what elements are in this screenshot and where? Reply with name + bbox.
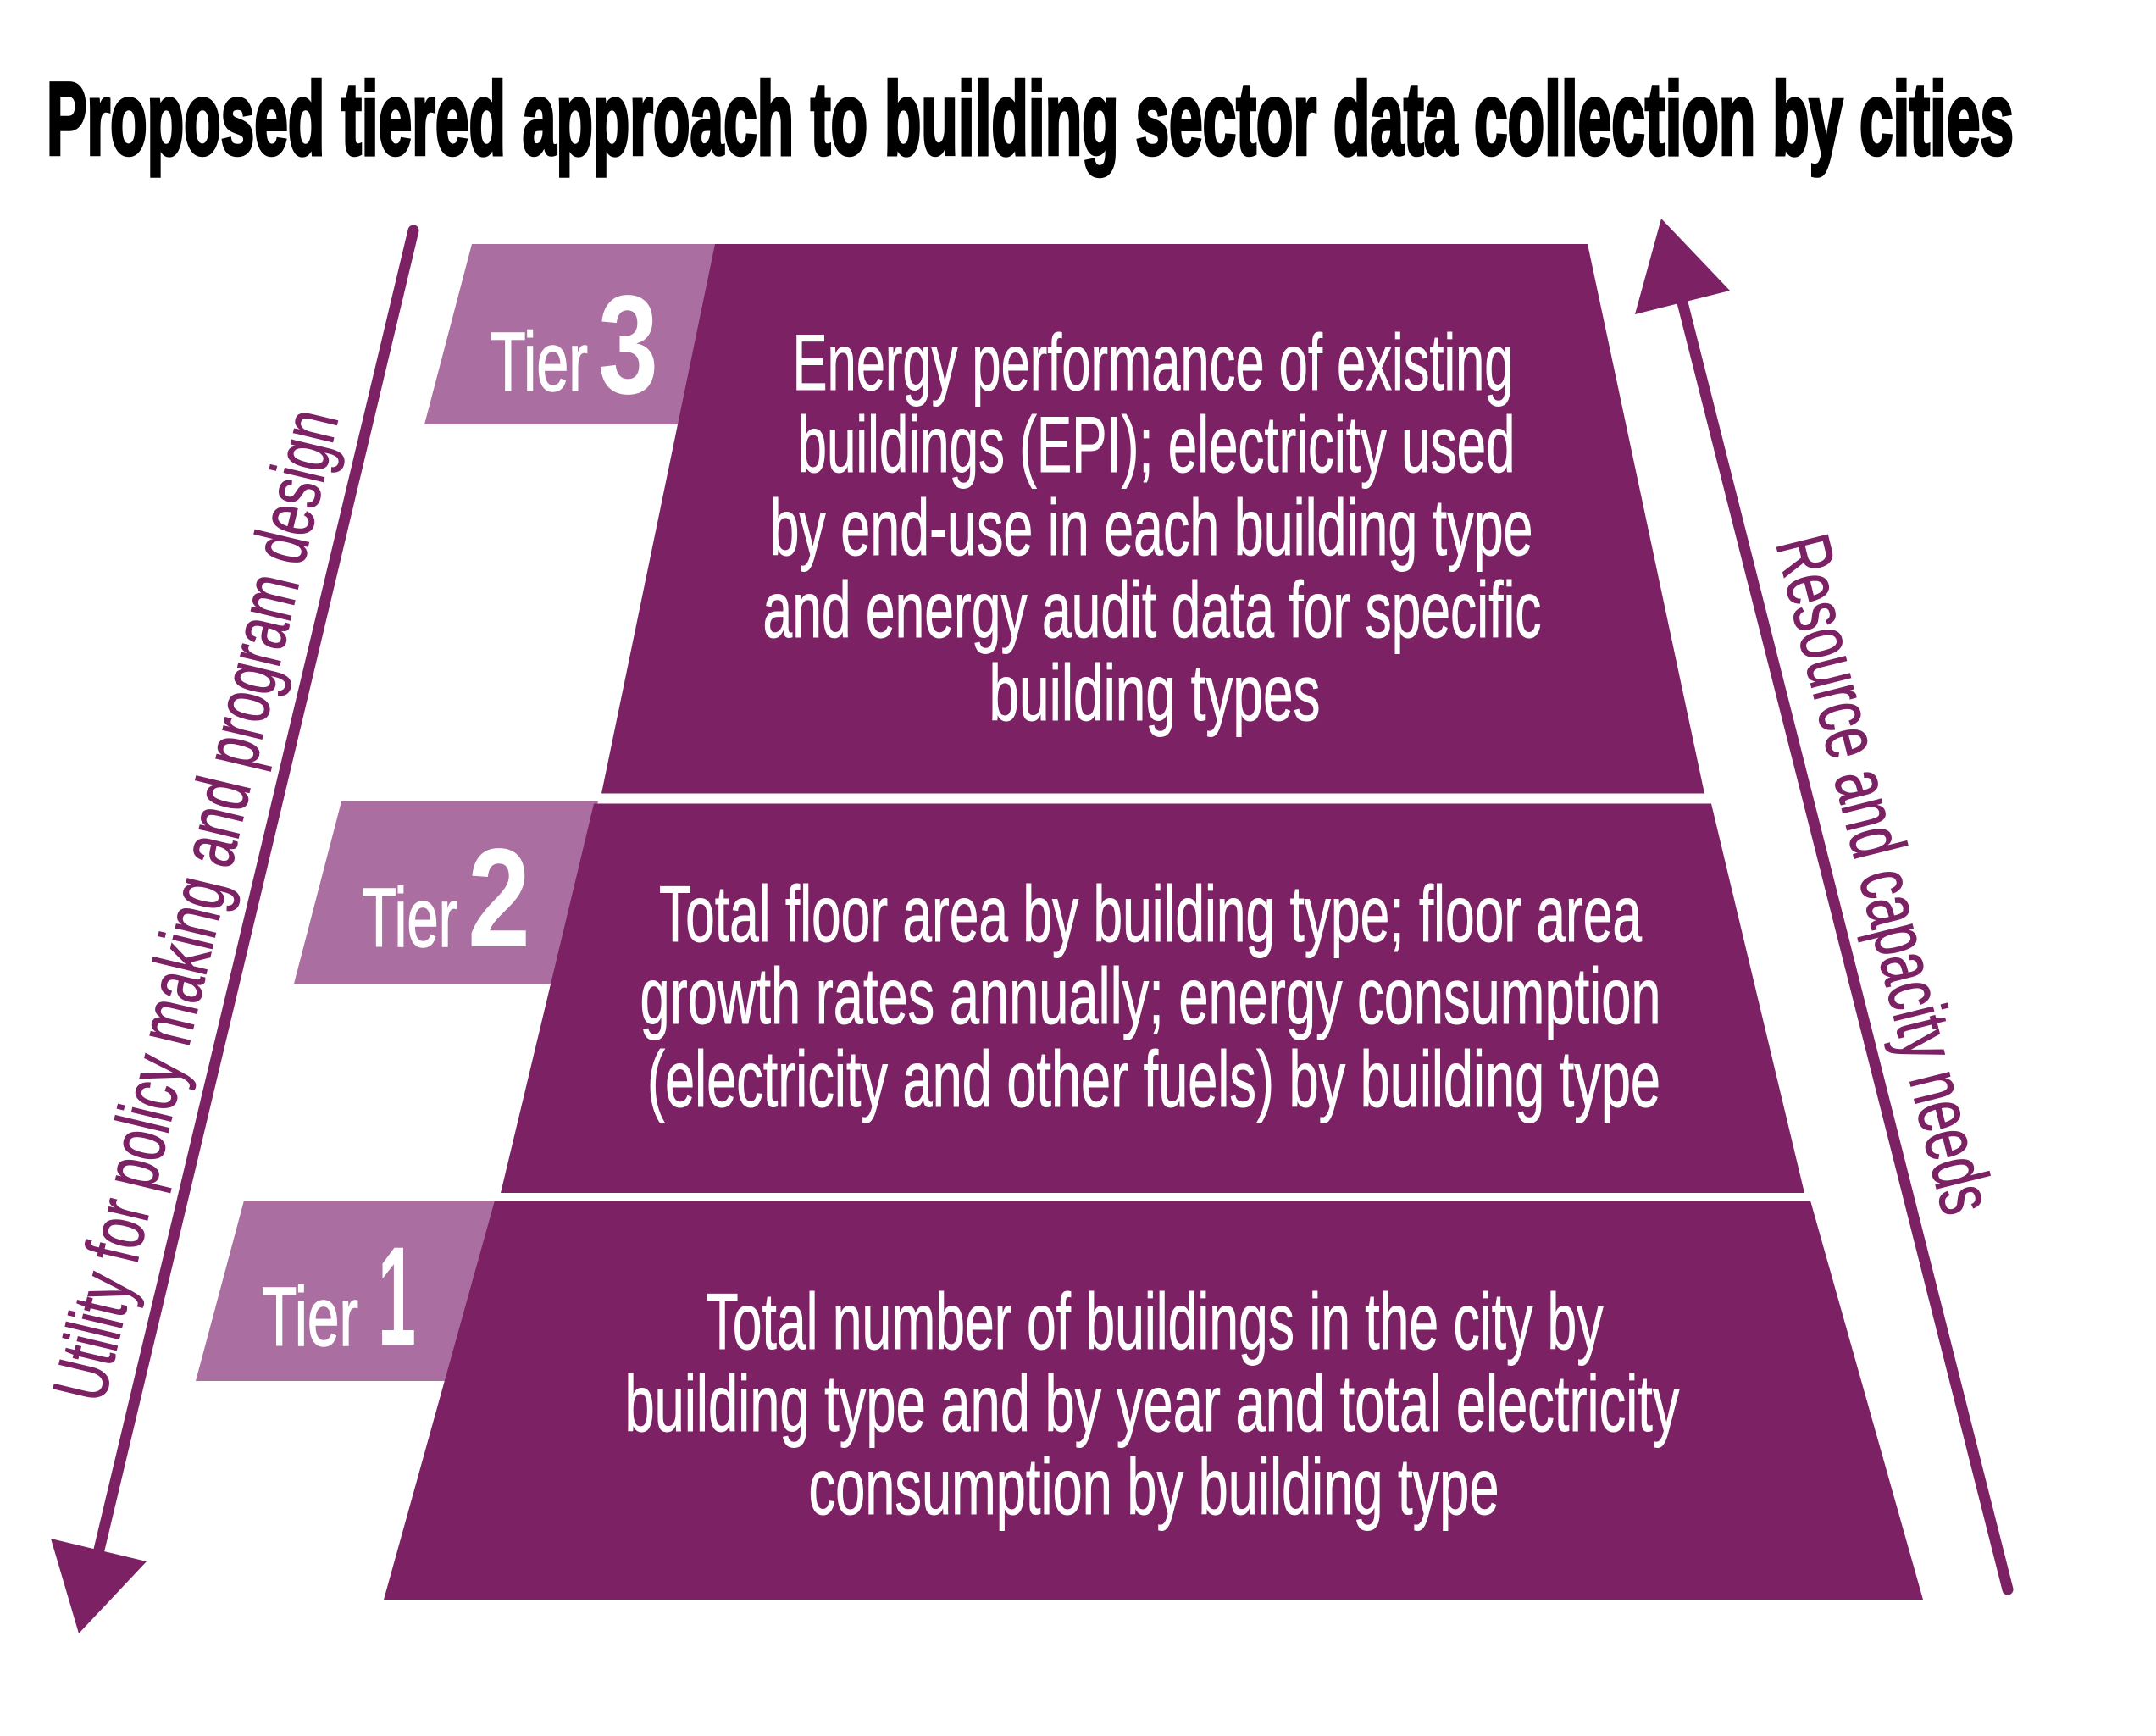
svg-text:Total number of buildings in t: Total number of buildings in the city by xyxy=(707,1277,1604,1366)
svg-text:growth rates annually; energy: growth rates annually; energy consumptio… xyxy=(640,951,1661,1040)
svg-text:(electricity and other fuels): (electricity and other fuels) by buildin… xyxy=(647,1034,1660,1123)
svg-text:Tier: Tier xyxy=(262,1270,358,1363)
svg-text:consumption by building type: consumption by building type xyxy=(809,1442,1499,1531)
svg-text:3: 3 xyxy=(598,267,658,424)
svg-text:and energy audit data for spec: and energy audit data for specific xyxy=(763,565,1542,654)
svg-text:building type and by year and: building type and by year and total elec… xyxy=(625,1359,1680,1448)
svg-text:2: 2 xyxy=(468,820,530,977)
svg-text:Proposed tiered approach to bu: Proposed tiered approach to building sec… xyxy=(47,61,2014,176)
svg-text:buildings (EPI); electricity u: buildings (EPI); electricity used xyxy=(798,400,1516,489)
svg-text:Tier: Tier xyxy=(362,871,457,964)
svg-text:Energy performance of existing: Energy performance of existing xyxy=(793,318,1514,407)
svg-text:Total floor area by building t: Total floor area by building type; floor… xyxy=(659,869,1642,958)
svg-text:Tier: Tier xyxy=(491,315,588,408)
svg-text:building types: building types xyxy=(989,648,1321,737)
svg-text:by end-use in each building ty: by end-use in each building type xyxy=(770,483,1533,572)
svg-text:1: 1 xyxy=(378,1218,416,1375)
